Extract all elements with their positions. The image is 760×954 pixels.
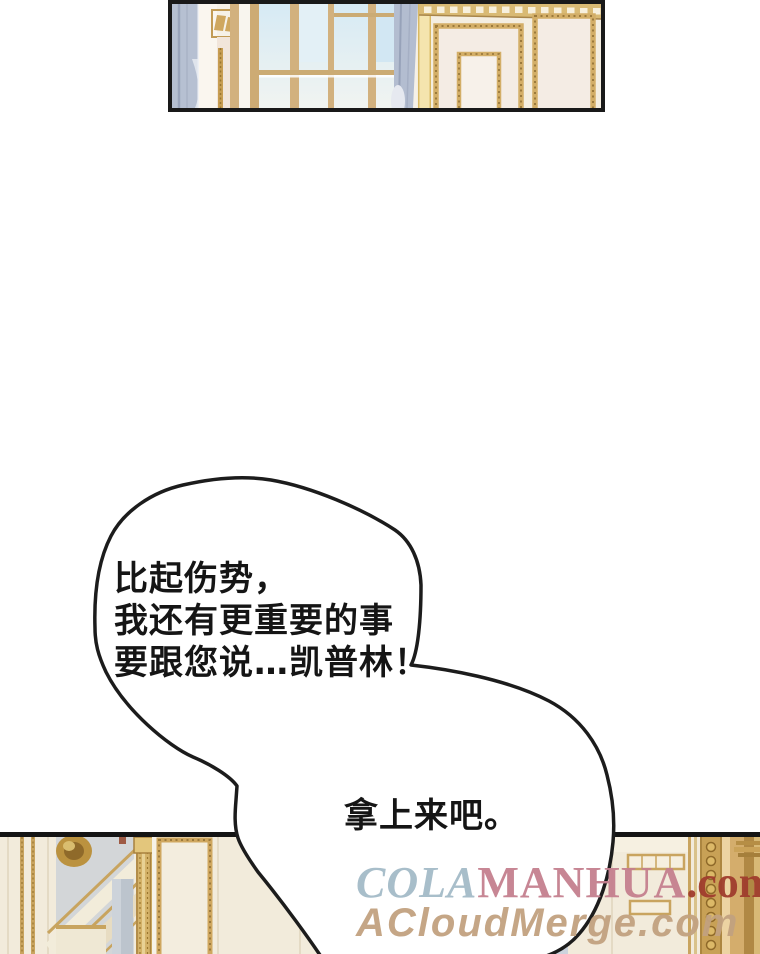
watermark-cola-text: COLA	[356, 858, 477, 907]
speech-line-3: 要跟您说…凯普林！	[114, 642, 429, 684]
watermark-manhua-text: MANHUA	[477, 858, 686, 907]
top-panel	[168, 0, 605, 112]
watermark-com-text: .com	[686, 858, 760, 907]
watermark-acloudmerge: ACloudMerge.com	[356, 903, 739, 943]
speech-text-main: 比起伤势， 我还有更重要的事 要跟您说…凯普林！	[114, 558, 429, 684]
speech-text-reply: 拿上来吧。	[344, 797, 519, 835]
speech-line-2: 我还有更重要的事	[114, 600, 429, 642]
speech-line-1: 比起伤势，	[114, 558, 429, 600]
comic-page-canvas: 比起伤势， 我还有更重要的事 要跟您说…凯普林！ 拿上来吧。 COLAMANHU…	[0, 0, 760, 954]
watermark-colamanhua: COLAMANHUA.com	[356, 861, 760, 905]
palace-window-illustration	[172, 4, 601, 108]
